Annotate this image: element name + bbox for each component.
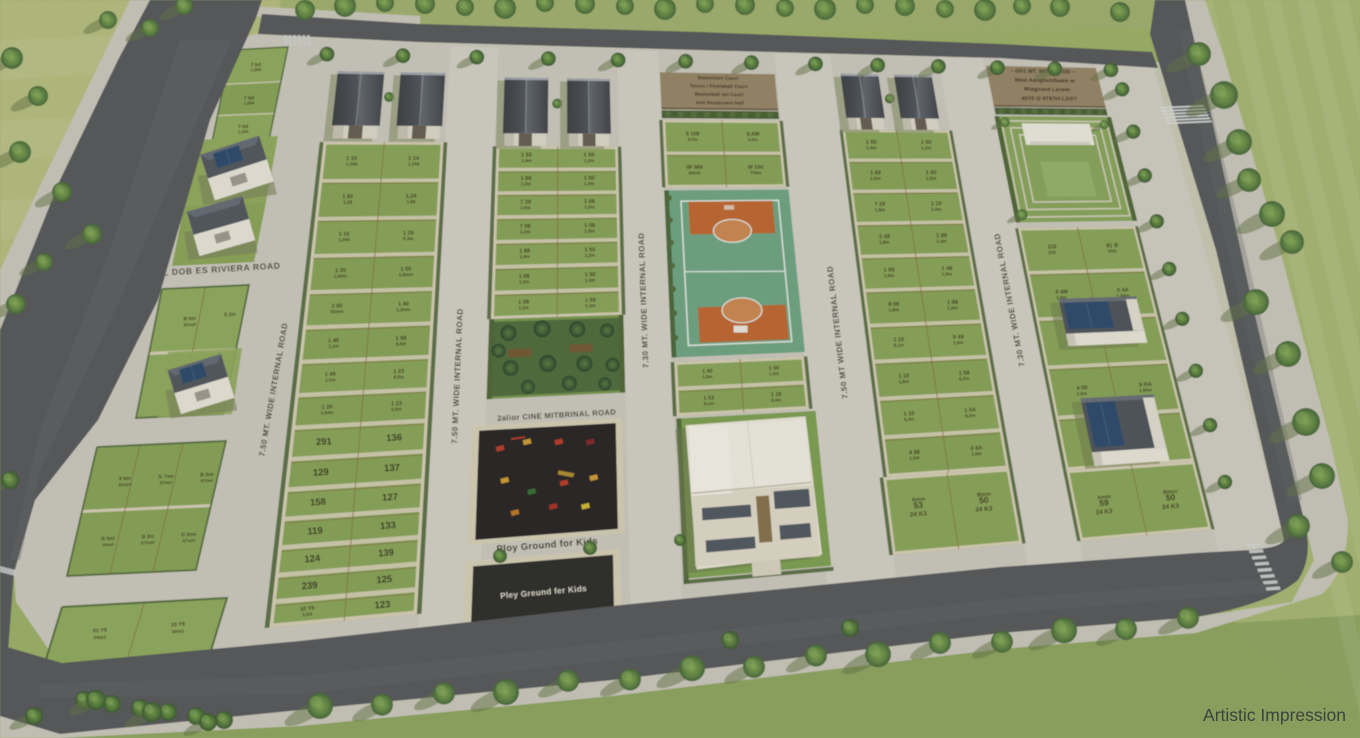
- svg-text:Artistic Impression: Artistic Impression: [1203, 705, 1346, 725]
